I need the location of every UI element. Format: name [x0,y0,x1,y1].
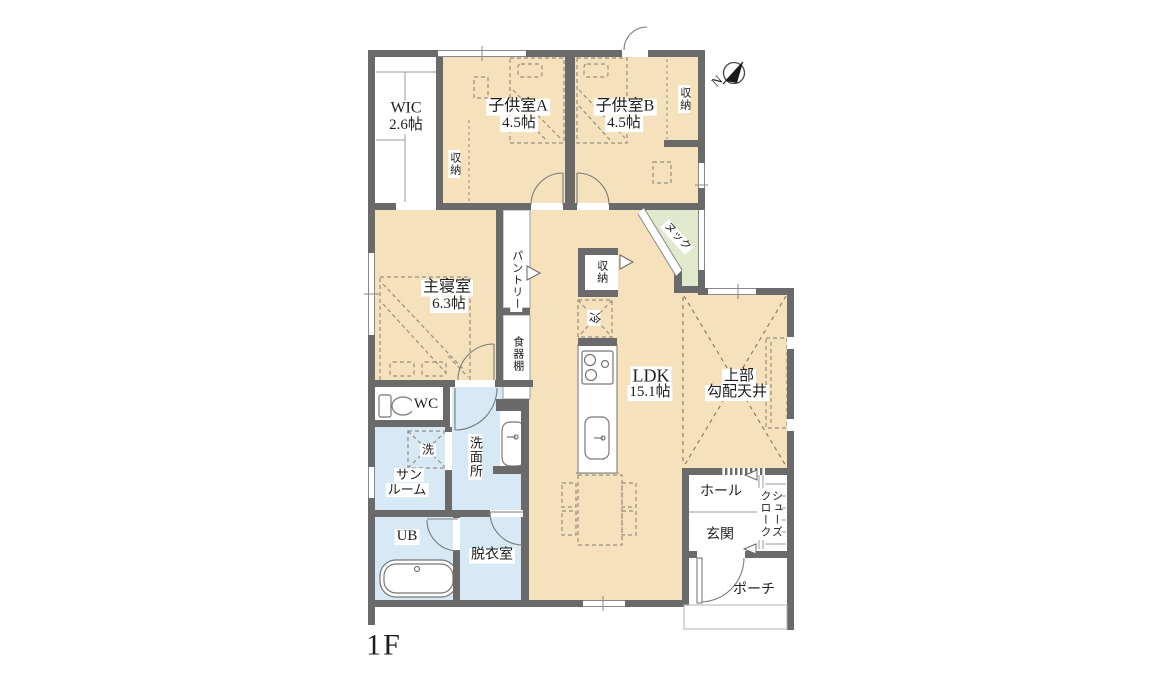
label-master-size: 6.3帖 [430,297,468,313]
label-shoe-closet: シューズ クローク [758,488,781,540]
label-porch: ポーチ [731,584,777,599]
label-dressing: 脱衣室 [469,549,515,564]
label-storage-kitchen: 収納 [595,258,607,286]
label-ldk-size: 15.1帖 [627,385,672,401]
label-wic-size: 2.6帖 [387,118,425,134]
hatched-wall-segment [722,468,767,475]
floor-plan-page: WIC 2.6帖 子供室A 4.5帖 子供室B 4.5帖 収納 収納 収納 主寝… [0,0,1160,686]
label-wic: WIC [388,101,423,118]
label-storage-northeast: 収納 [678,85,690,113]
kitchen-sink-icon [585,417,609,459]
label-ub: UB [395,529,420,545]
label-pantry: パントリー [510,248,522,312]
label-sunroom-1: サン [394,468,424,482]
label-ldk: LDK [631,367,672,386]
label-kids-b-size: 4.5帖 [605,116,643,132]
stove-icon [582,351,613,384]
label-master: 主寝室 [421,280,473,297]
porch-step [684,605,787,629]
door-kids-b-exterior [624,27,647,50]
label-fridge: 冷 [588,310,601,326]
bathtub-icon [380,560,457,597]
label-sunroom-2: ルーム [386,483,429,497]
label-storage-west: 収納 [448,150,460,178]
label-wc: WC [412,397,440,413]
label-kids-b: 子供室B [594,99,657,116]
label-entrance: 玄関 [704,529,736,544]
floor-plan-drawing [0,0,1160,686]
label-kids-a-size: 4.5帖 [500,116,538,132]
label-washer: 洗 [420,444,436,457]
label-sloped-ceiling-1: 上部 [722,369,756,385]
floor-title: 1F [364,629,404,661]
label-sloped-ceiling-2: 勾配天井 [705,385,769,401]
toilet-icon [379,395,414,417]
label-hall: ホール [698,486,744,501]
label-kids-a: 子供室A [486,99,550,116]
label-cupboard: 食器棚 [511,334,523,374]
label-washroom: 洗面所 [468,434,482,480]
